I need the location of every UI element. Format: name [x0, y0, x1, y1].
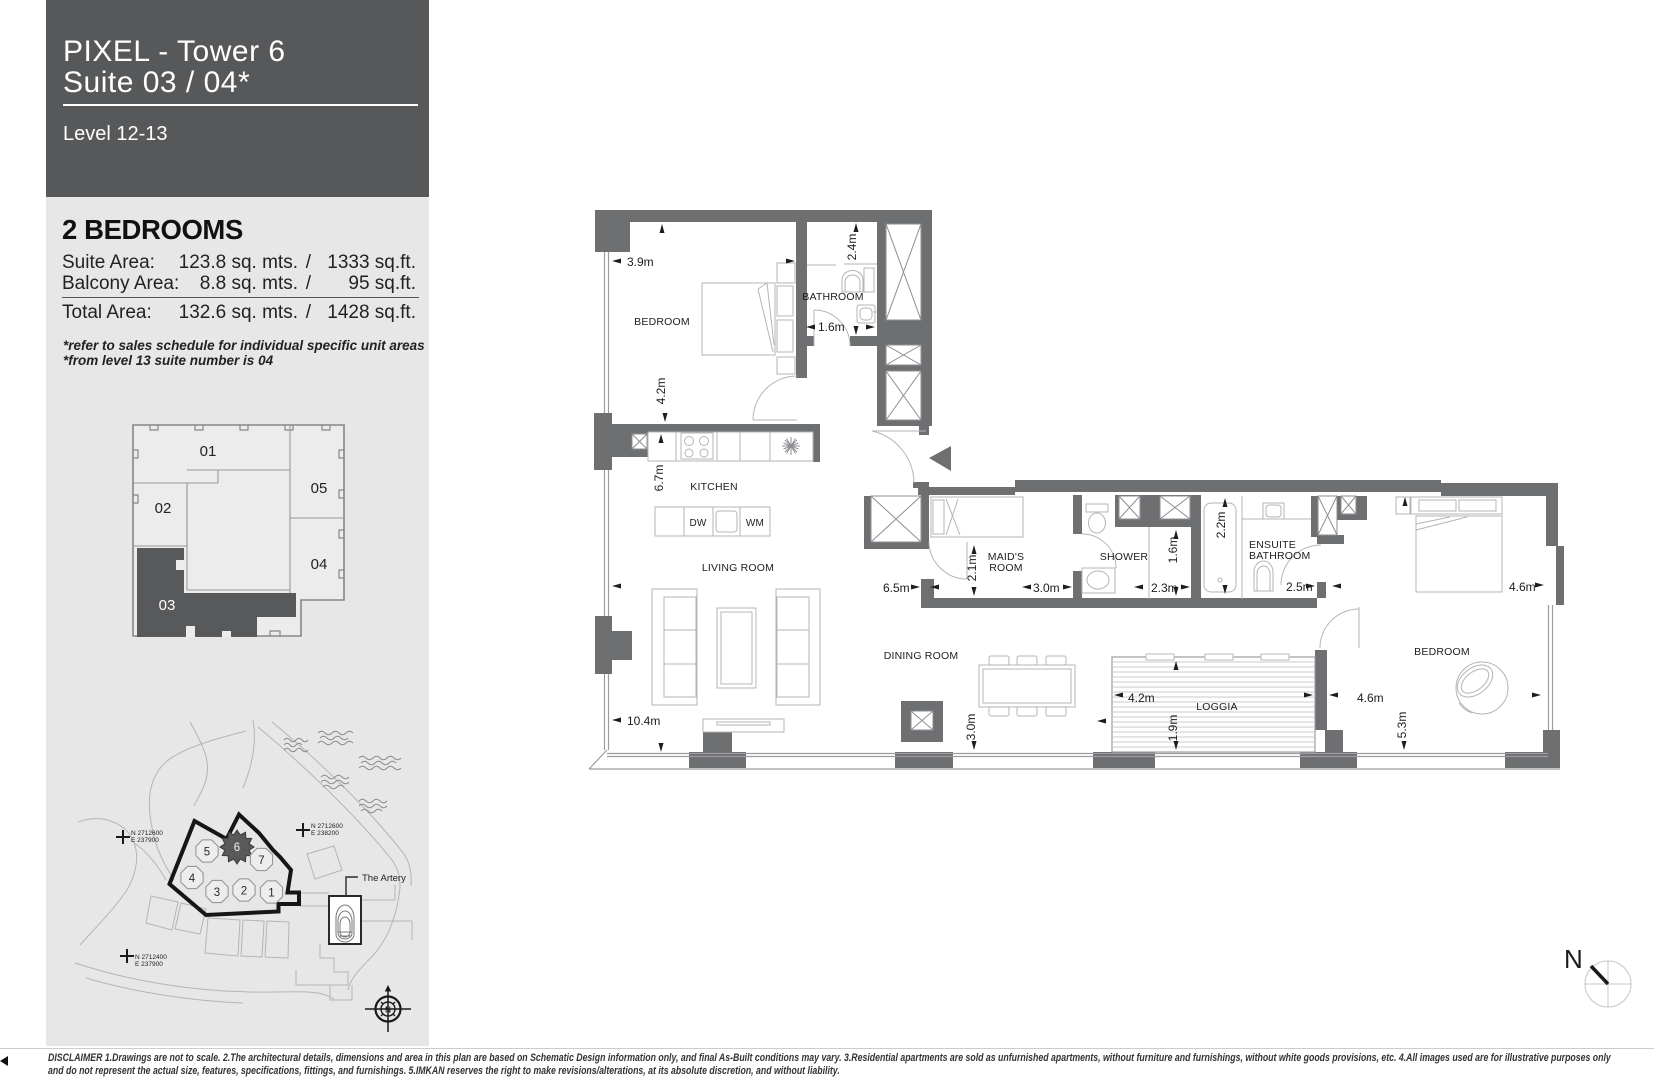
svg-text:ROOM: ROOM — [989, 562, 1022, 574]
svg-text:3.0m: 3.0m — [964, 714, 978, 741]
svg-text:E 237900: E 237900 — [135, 961, 163, 968]
svg-text:4.6m: 4.6m — [1509, 580, 1536, 594]
svg-text:10.4m: 10.4m — [627, 714, 660, 728]
svg-text:BEDROOM: BEDROOM — [1414, 646, 1470, 658]
svg-text:WM: WM — [746, 518, 764, 529]
svg-text:3: 3 — [214, 887, 220, 899]
svg-text:N: N — [1564, 944, 1583, 974]
svg-text:5: 5 — [204, 847, 210, 859]
svg-text:05: 05 — [311, 480, 328, 497]
svg-text:7: 7 — [258, 855, 264, 867]
svg-text:DINING ROOM: DINING ROOM — [884, 650, 959, 662]
svg-text:BATHROOM: BATHROOM — [1249, 550, 1311, 562]
svg-text:01: 01 — [200, 443, 217, 460]
svg-text:04: 04 — [311, 556, 328, 573]
svg-text:LIVING ROOM: LIVING ROOM — [702, 562, 774, 574]
svg-text:LOGGIA: LOGGIA — [1196, 701, 1237, 713]
svg-text:4.2m: 4.2m — [1128, 691, 1155, 705]
svg-text:1: 1 — [268, 888, 274, 900]
svg-text:4.6m: 4.6m — [1357, 691, 1384, 705]
svg-text:E 237900: E 237900 — [131, 837, 159, 844]
svg-text:BEDROOM: BEDROOM — [634, 316, 690, 328]
svg-text:03: 03 — [159, 597, 176, 614]
svg-text:3.9m: 3.9m — [627, 255, 654, 269]
svg-text:E 238200: E 238200 — [311, 830, 339, 837]
svg-text:5.3m: 5.3m — [1395, 712, 1409, 739]
svg-text:The Artery: The Artery — [362, 873, 406, 884]
svg-text:N: N — [385, 1006, 391, 1015]
svg-text:4: 4 — [189, 873, 196, 885]
svg-text:KITCHEN: KITCHEN — [690, 481, 738, 493]
svg-text:2.3m: 2.3m — [1151, 581, 1178, 595]
svg-text:4.2m: 4.2m — [654, 378, 668, 405]
svg-text:3.0m: 3.0m — [1033, 581, 1060, 595]
svg-text:BATHROOM: BATHROOM — [802, 291, 864, 303]
svg-text:6: 6 — [234, 842, 240, 854]
svg-text:2.1m: 2.1m — [965, 555, 979, 582]
svg-text:N 2712600: N 2712600 — [311, 823, 343, 830]
svg-text:02: 02 — [155, 500, 172, 517]
svg-text:N 2712600: N 2712600 — [131, 830, 163, 837]
svg-text:2.4m: 2.4m — [845, 234, 859, 261]
svg-text:6.5m: 6.5m — [883, 581, 910, 595]
svg-text:2.2m: 2.2m — [1214, 512, 1228, 539]
svg-text:DW: DW — [689, 518, 706, 529]
svg-text:SHOWER: SHOWER — [1100, 551, 1149, 563]
svg-text:1.6m: 1.6m — [1166, 537, 1180, 564]
svg-text:N 2712400: N 2712400 — [135, 954, 167, 961]
svg-text:2: 2 — [241, 886, 247, 898]
svg-text:6.7m: 6.7m — [652, 465, 666, 492]
svg-text:1.9m: 1.9m — [1166, 715, 1180, 742]
svg-text:1.6m: 1.6m — [818, 320, 845, 334]
